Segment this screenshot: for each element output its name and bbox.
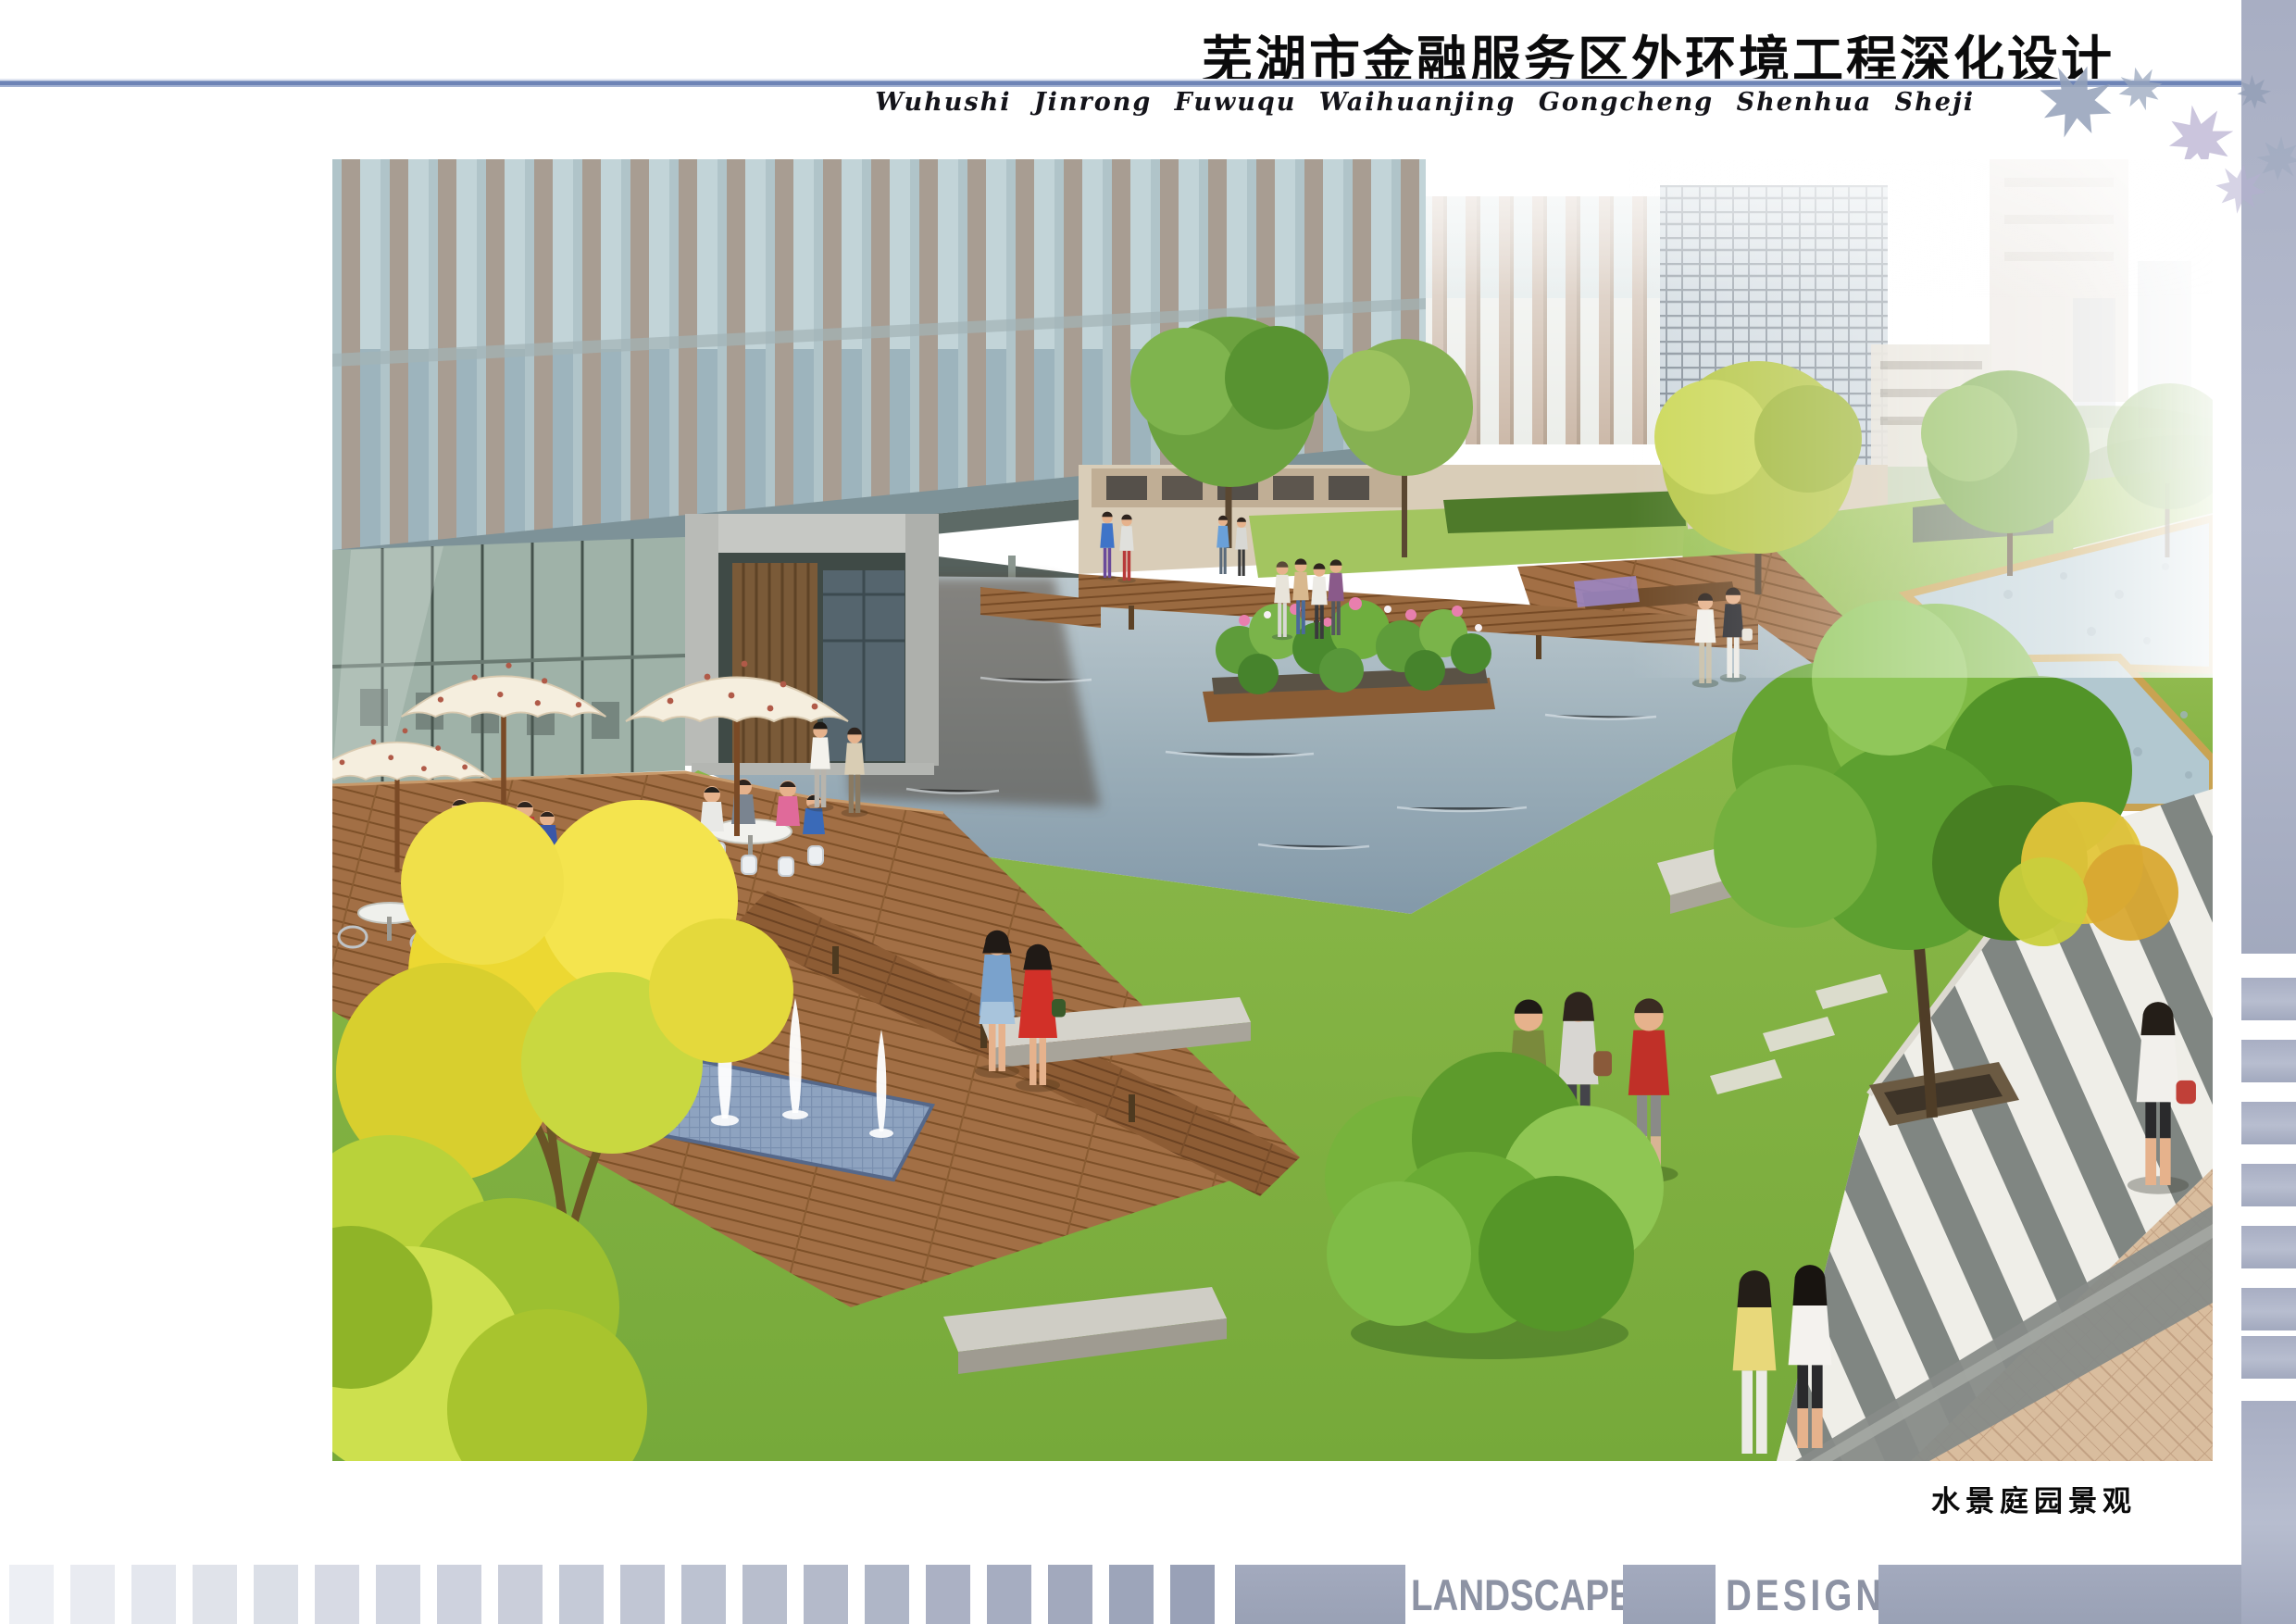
footer-square <box>620 1565 665 1624</box>
sidebar-bar-segment <box>2241 1040 2296 1082</box>
footer-square <box>437 1565 481 1624</box>
sidebar-bar-segment <box>2241 978 2296 1020</box>
footer-square <box>315 1565 359 1624</box>
footer-square <box>804 1565 848 1624</box>
footer-block <box>1235 1565 1405 1624</box>
figure-caption: 水景庭园景观 <box>1931 1478 2137 1519</box>
footer-square <box>1109 1565 1154 1624</box>
rendering-figure <box>332 159 2213 1461</box>
footer-square <box>9 1565 54 1624</box>
sidebar-bar-segment <box>2241 1164 2296 1206</box>
footer-block <box>1623 1565 1716 1624</box>
entrance-portico <box>685 514 939 775</box>
sidebar-bar-segment <box>2241 1288 2296 1330</box>
footer-square <box>1048 1565 1092 1624</box>
design-board-page: 芜湖市金融服务区外环境工程深化设计 Wuhushi Jinrong Fuwuqu… <box>0 0 2296 1624</box>
footer-square <box>131 1565 176 1624</box>
footer-square <box>193 1565 237 1624</box>
footer-square <box>254 1565 298 1624</box>
footer-bar-long <box>1878 1565 2241 1624</box>
header-rule-line <box>0 79 2296 87</box>
footer-square <box>742 1565 787 1624</box>
footer-square <box>681 1565 726 1624</box>
sidebar-bar-segment <box>2241 1226 2296 1268</box>
footer-square <box>70 1565 115 1624</box>
landscape-label: LANDSCAPE <box>1411 1565 1633 1624</box>
sidebar-bar-segment <box>2241 1102 2296 1144</box>
footer-squares <box>9 1565 1235 1624</box>
sidebar-bar-bottom <box>2241 1401 2296 1624</box>
footer-square <box>865 1565 909 1624</box>
footer-square <box>376 1565 420 1624</box>
footer-square <box>926 1565 970 1624</box>
haze-overlay-top <box>1426 159 2213 298</box>
page-subtitle-pinyin: Wuhushi Jinrong Fuwuqu Waihuanjing Gongc… <box>875 88 1975 117</box>
footer-square <box>987 1565 1031 1624</box>
footer-square <box>559 1565 604 1624</box>
rendering-image <box>332 159 2213 1461</box>
sidebar-bar-segment <box>2241 1336 2296 1379</box>
sidebar-bar-top <box>2241 0 2296 954</box>
footer-square <box>498 1565 543 1624</box>
footer-square <box>1170 1565 1215 1624</box>
design-label: DESIGN <box>1726 1565 1885 1624</box>
